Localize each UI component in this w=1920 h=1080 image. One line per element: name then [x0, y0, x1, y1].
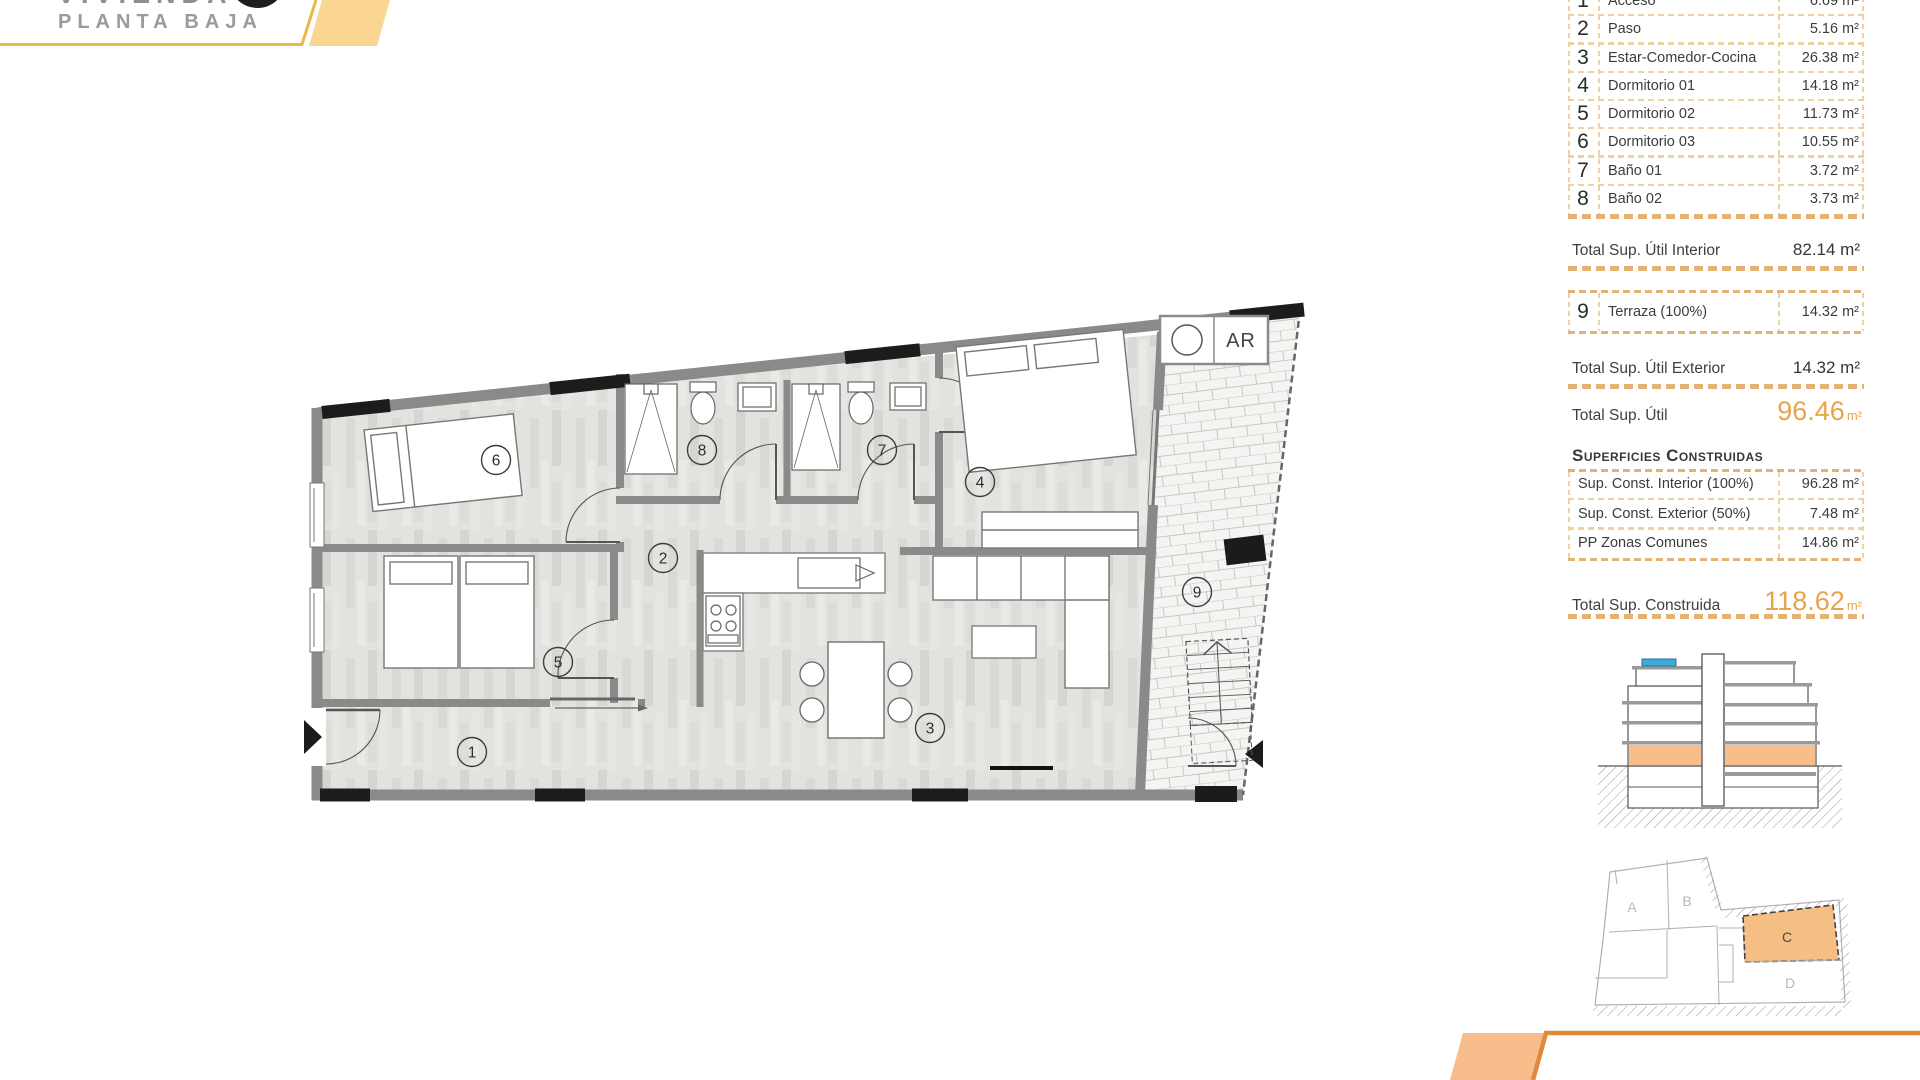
terraza-row-box: 9 Terraza (100%) 14.32 m²	[1568, 290, 1864, 334]
terrace-black-rect-bottom	[1195, 786, 1237, 802]
table-row: 5Dormitorio 0211.73 m²	[1568, 101, 1864, 127]
construidas-box: Sup. Const. Interior (100%)96.28 m² Sup.…	[1568, 469, 1864, 561]
block-a-label: A	[1627, 899, 1637, 915]
svg-text:1: 1	[468, 745, 477, 762]
total-exterior-row: Total Sup. Útil Exterior 14.32 m²	[1572, 358, 1862, 378]
block-c-label: C	[1782, 929, 1792, 945]
svg-text:9: 9	[1193, 585, 1202, 602]
page-subtitle: PLANTA BAJA	[58, 11, 263, 34]
table-row: 8Baño 023.73 m²	[1568, 186, 1864, 212]
building-section-diagram	[1598, 646, 1842, 830]
total-interior-row: Total Sup. Útil Interior 82.14 m²	[1572, 240, 1862, 260]
closet-room4	[982, 512, 1138, 548]
surface-table: 1Acceso6.69 m² 2Paso5.16 m² 3Estar-Comed…	[1568, 0, 1864, 219]
block-d-label: D	[1785, 975, 1795, 991]
kitchen-stove	[706, 596, 740, 646]
coffee-table	[972, 626, 1036, 658]
table-row: 4Dormitorio 0114.18 m²	[1568, 73, 1864, 99]
bed-room4	[956, 329, 1136, 472]
page-title: VIVIENDA	[57, 0, 233, 10]
svg-text:6: 6	[492, 453, 501, 470]
solar-panel	[1642, 659, 1676, 666]
block-b-label: B	[1682, 893, 1691, 909]
footer-orange-parallelogram	[1450, 1033, 1546, 1080]
ar-unit-box: AR	[1160, 316, 1268, 364]
floor-plan: AR 1 2 3 4 5 6 7 8 9	[300, 290, 1310, 810]
svg-text:2: 2	[659, 551, 668, 568]
surface-table-panel: 1Acceso6.69 m² 2Paso5.16 m² 3Estar-Comed…	[1568, 0, 1864, 219]
svg-text:3: 3	[926, 721, 935, 738]
plan-sheet-page: { "header": { "title": "VIVIENDA", "subt…	[0, 0, 1920, 1080]
svg-text:8: 8	[698, 443, 707, 460]
table-row: 2Paso5.16 m²	[1568, 16, 1864, 42]
construidas-row: Sup. Const. Exterior (50%)7.48 m²	[1568, 500, 1864, 527]
table-row: 1Acceso6.69 m²	[1568, 0, 1864, 14]
total-construida-row: Total Sup. Construida 118.62 m²	[1572, 586, 1862, 617]
table-row: 6Dormitorio 0310.55 m²	[1568, 129, 1864, 155]
left-wall-openings	[309, 483, 326, 766]
table-row: 3Estar-Comedor-Cocina26.38 m²	[1568, 45, 1864, 71]
header-orange-parallelogram	[309, 0, 390, 46]
construidas-row: PP Zonas Comunes14.86 m²	[1568, 530, 1864, 557]
footer-orange-line	[1533, 1033, 1920, 1080]
terrace-black-rect-wall	[1224, 535, 1267, 566]
total-util-row: Total Sup. Útil 96.46 m²	[1572, 396, 1862, 427]
construidas-row: Sup. Const. Interior (100%)96.28 m²	[1568, 469, 1864, 498]
site-plan-diagram: A B C D	[1575, 850, 1865, 1025]
table-row: 7Baño 013.72 m²	[1568, 158, 1864, 184]
ar-label: AR	[1226, 330, 1256, 352]
core-column	[1702, 654, 1724, 806]
footer-band	[1400, 1025, 1920, 1080]
svg-text:7: 7	[878, 443, 887, 460]
construidas-heading: Superficies Construidas	[1572, 446, 1763, 466]
svg-text:5: 5	[554, 655, 563, 672]
svg-text:4: 4	[976, 475, 985, 492]
